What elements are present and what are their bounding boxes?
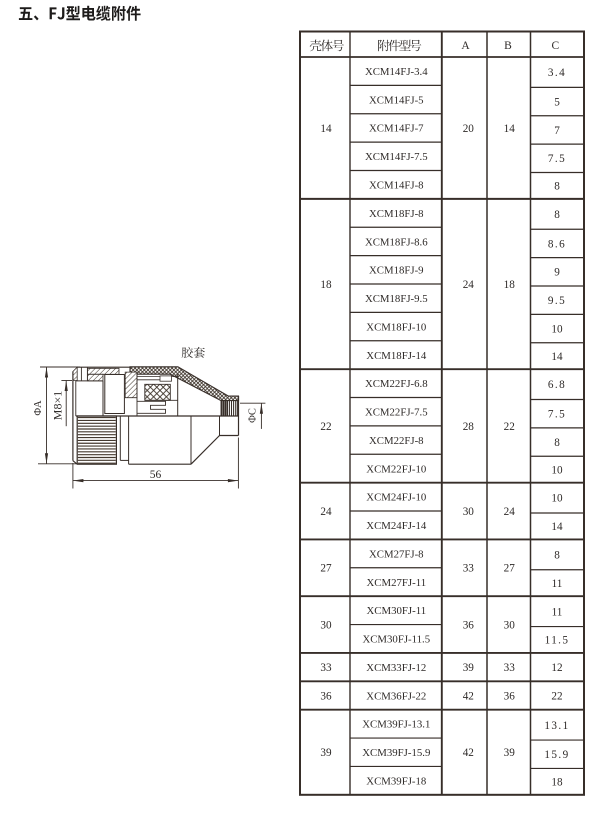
svg-text:14: 14 [551,521,563,533]
svg-text:ΦC: ΦC [247,408,258,423]
svg-text:3.4: 3.4 [548,67,566,79]
svg-text:XCM18FJ-9.5: XCM18FJ-9.5 [365,293,428,305]
svg-text:XCM33FJ-12: XCM33FJ-12 [366,662,426,674]
svg-text:XCM27FJ-8: XCM27FJ-8 [369,548,424,560]
svg-text:XCM18FJ-9: XCM18FJ-9 [369,265,424,277]
svg-text:36: 36 [463,619,475,631]
svg-text:12: 12 [551,662,562,674]
svg-text:36: 36 [504,690,516,702]
svg-text:24: 24 [504,506,516,518]
svg-text:8: 8 [554,209,560,221]
svg-text:XCM39FJ-15.9: XCM39FJ-15.9 [362,747,430,759]
svg-text:7.5: 7.5 [548,153,566,165]
svg-text:9.5: 9.5 [548,295,566,307]
svg-text:XCM30FJ-11: XCM30FJ-11 [367,605,427,617]
svg-text:33: 33 [504,662,516,674]
svg-text:8: 8 [554,181,560,193]
svg-text:8: 8 [554,437,560,449]
svg-text:28: 28 [463,421,475,433]
svg-text:XCM18FJ-14: XCM18FJ-14 [366,350,427,362]
svg-text:ΦA: ΦA [33,400,44,416]
svg-text:36: 36 [320,690,332,702]
svg-text:30: 30 [463,506,475,518]
svg-text:33: 33 [463,563,475,575]
svg-text:XCM22FJ-7.5: XCM22FJ-7.5 [365,407,428,419]
svg-text:XCM27FJ-11: XCM27FJ-11 [367,577,427,589]
svg-text:XCM14FJ-7: XCM14FJ-7 [369,123,424,135]
svg-text:22: 22 [551,690,562,702]
svg-text:11.5: 11.5 [545,635,570,647]
svg-text:XCM24FJ-14: XCM24FJ-14 [366,520,427,532]
svg-text:39: 39 [320,747,332,759]
svg-text:XCM30FJ-11.5: XCM30FJ-11.5 [362,634,430,646]
svg-text:11: 11 [552,578,563,590]
svg-text:11: 11 [552,606,563,618]
svg-text:15.9: 15.9 [544,749,569,761]
svg-text:14: 14 [504,123,516,135]
svg-text:42: 42 [463,747,474,759]
svg-text:XCM39FJ-18: XCM39FJ-18 [366,775,426,787]
svg-text:XCM22FJ-8: XCM22FJ-8 [369,435,424,447]
svg-text:33: 33 [320,662,332,674]
svg-text:XCM14FJ-3.4: XCM14FJ-3.4 [365,66,428,78]
svg-text:B: B [504,40,512,52]
svg-text:XCM18FJ-8: XCM18FJ-8 [369,208,424,220]
svg-text:10: 10 [551,323,563,335]
svg-text:8: 8 [554,549,560,561]
svg-text:39: 39 [504,747,516,759]
svg-text:13.1: 13.1 [544,720,569,732]
svg-text:M8×1: M8×1 [50,391,64,420]
svg-text:24: 24 [463,279,475,291]
svg-text:39: 39 [463,662,475,674]
svg-text:XCM14FJ-8: XCM14FJ-8 [369,179,424,191]
svg-text:5: 5 [554,96,560,108]
svg-text:8.6: 8.6 [548,238,566,250]
svg-text:XCM22FJ-6.8: XCM22FJ-6.8 [365,378,428,390]
svg-text:XCM36FJ-22: XCM36FJ-22 [366,690,426,702]
svg-text:20: 20 [463,123,475,135]
svg-text:30: 30 [320,619,332,631]
svg-text:14: 14 [551,351,563,363]
svg-text:10: 10 [551,493,563,505]
svg-text:7: 7 [554,125,560,137]
svg-text:22: 22 [320,421,331,433]
svg-text:14: 14 [320,123,332,135]
svg-text:XCM18FJ-8.6: XCM18FJ-8.6 [365,236,428,248]
svg-text:22: 22 [504,421,515,433]
svg-text:XCM24FJ-10: XCM24FJ-10 [366,492,426,504]
svg-text:18: 18 [320,279,332,291]
svg-text:18: 18 [504,279,516,291]
svg-text:27: 27 [320,563,332,575]
svg-text:XCM14FJ-5: XCM14FJ-5 [369,94,424,106]
svg-text:56: 56 [150,469,162,481]
svg-text:10: 10 [551,464,563,476]
svg-text:A: A [461,40,470,52]
svg-text:9: 9 [554,267,560,279]
svg-text:XCM39FJ-13.1: XCM39FJ-13.1 [362,719,430,731]
svg-text:27: 27 [504,563,516,575]
svg-text:24: 24 [320,506,332,518]
svg-text:XCM22FJ-10: XCM22FJ-10 [366,463,426,475]
svg-text:XCM18FJ-10: XCM18FJ-10 [366,321,426,333]
svg-text:7.5: 7.5 [548,409,566,421]
svg-text:C: C [551,40,559,52]
svg-text:6.8: 6.8 [548,379,566,391]
svg-text:18: 18 [551,777,563,789]
svg-text:30: 30 [504,619,516,631]
svg-text:XCM14FJ-7.5: XCM14FJ-7.5 [365,151,428,163]
svg-text:42: 42 [463,690,474,702]
